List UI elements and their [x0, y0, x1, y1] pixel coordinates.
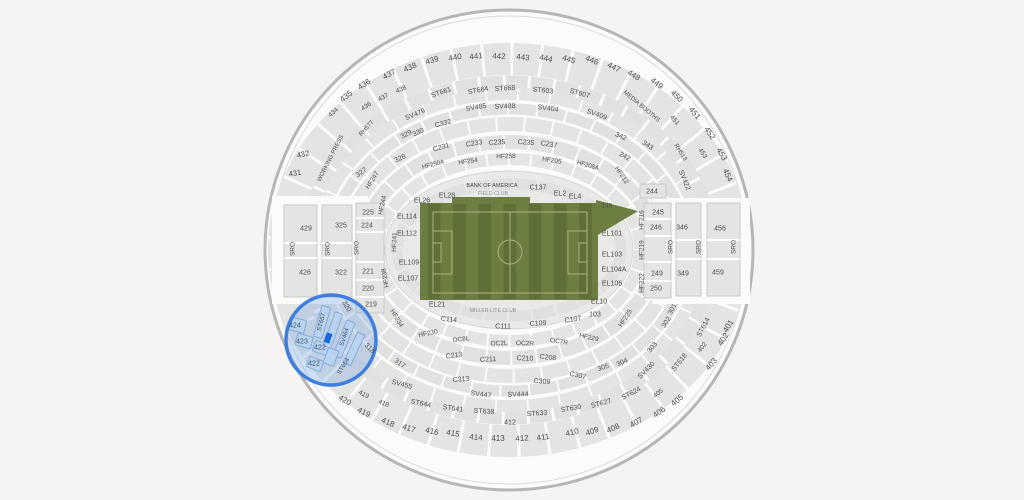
section-label[interactable]: 431	[288, 168, 302, 179]
section-label[interactable]: 413	[491, 434, 505, 443]
field-stripe	[453, 204, 466, 299]
section-label[interactable]: SRO	[324, 242, 331, 256]
section-label[interactable]: 221	[362, 268, 374, 275]
section-label[interactable]: 412	[515, 433, 529, 443]
section-label[interactable]: 424	[289, 322, 301, 329]
section-label[interactable]: EL10	[591, 298, 607, 305]
section-label[interactable]: HF222	[638, 273, 645, 293]
section-label[interactable]: 246	[650, 224, 662, 231]
section-label[interactable]: 422	[308, 360, 320, 367]
section-label[interactable]: EL106	[602, 280, 622, 287]
section-label[interactable]: EL114	[397, 213, 417, 220]
section-label[interactable]: EL21	[429, 301, 445, 308]
field-stripe	[478, 204, 491, 299]
section-label[interactable]: MILLER LITE CLUB	[470, 308, 517, 314]
section-label[interactable]: 145	[602, 202, 613, 209]
section-label[interactable]: 423	[296, 338, 308, 345]
section-label[interactable]: 414	[469, 432, 484, 442]
section-label[interactable]: C235	[489, 139, 506, 147]
section-label[interactable]: EL107	[398, 275, 418, 282]
section-label[interactable]: 325	[335, 222, 347, 229]
section-label[interactable]: EL109	[399, 259, 419, 266]
section-label[interactable]: EL26	[414, 197, 430, 204]
section-label[interactable]: 225	[362, 209, 374, 216]
section-label[interactable]: 245	[652, 209, 664, 216]
section-label[interactable]: 249	[651, 270, 663, 277]
section-label[interactable]: SRO	[353, 241, 360, 255]
section-label[interactable]: ST633	[527, 410, 548, 418]
section-label[interactable]: ST638	[473, 408, 494, 416]
section-label[interactable]: 441	[469, 51, 484, 61]
section-label[interactable]: EL112	[397, 230, 417, 237]
field-north-notch	[452, 197, 530, 204]
section-label[interactable]: 412	[504, 419, 516, 426]
section-label[interactable]: 443	[516, 52, 531, 63]
section-label[interactable]: C210	[516, 355, 533, 363]
section-label[interactable]: 244	[646, 188, 658, 195]
section-label[interactable]: 426	[299, 269, 311, 276]
field-stripe	[579, 204, 592, 299]
section-label[interactable]: HF216	[638, 210, 645, 230]
field-stripe	[554, 204, 567, 299]
section-label[interactable]: ST668	[495, 85, 516, 93]
section-label[interactable]: 346	[676, 224, 688, 231]
section-label[interactable]: 456	[714, 225, 726, 232]
section-label[interactable]: FIELD CLUB	[478, 191, 509, 197]
section-label[interactable]: C235	[517, 139, 534, 147]
section-label[interactable]: 322	[335, 269, 347, 276]
section-label[interactable]: SRO	[730, 240, 737, 254]
section-label[interactable]: EL101	[602, 230, 622, 237]
section-label[interactable]: SV444	[507, 391, 528, 399]
section-label[interactable]: 459	[712, 269, 724, 276]
section-label[interactable]: 250	[650, 285, 662, 292]
section-label[interactable]: BANK OF AMERICA	[466, 183, 518, 189]
field-stripe	[428, 204, 441, 299]
section-label[interactable]: SRO	[289, 242, 296, 256]
section-label[interactable]: C309	[533, 378, 550, 386]
section-label[interactable]: C111	[495, 323, 511, 330]
field-stripe	[529, 204, 542, 299]
section-label[interactable]: HF219	[638, 240, 645, 260]
section-label[interactable]: EL103	[602, 251, 622, 258]
section-label[interactable]: 220	[362, 285, 374, 292]
seat-map-canvas: 4354364374384394404414424434444454464474…	[0, 0, 1024, 500]
section-label[interactable]: 224	[361, 222, 373, 229]
section-label[interactable]: 411	[536, 432, 550, 443]
stadium-seat-map[interactable]: 4354364374384394404414424434444454464474…	[0, 0, 1024, 500]
section-label[interactable]: EL4	[569, 193, 582, 200]
section-label[interactable]: SRO	[667, 240, 674, 254]
section-label[interactable]: HF258	[496, 153, 516, 160]
section-label[interactable]: SRO	[695, 240, 702, 254]
section-label[interactable]: EL2	[554, 190, 567, 197]
section-label[interactable]: OC2L	[490, 340, 508, 348]
section-label[interactable]: EL104A	[602, 266, 627, 273]
section-label[interactable]: 422	[314, 344, 326, 351]
section-label[interactable]: C109	[529, 320, 546, 328]
section-label[interactable]: OC2R	[516, 340, 535, 348]
section-label[interactable]: 349	[677, 270, 689, 277]
section-label[interactable]: 219	[365, 301, 377, 308]
section-label[interactable]: 429	[300, 225, 312, 232]
section-label[interactable]: 442	[492, 52, 506, 61]
section-label[interactable]: SV488	[494, 103, 515, 111]
section-label[interactable]: 103	[589, 311, 601, 318]
section-label[interactable]: C211	[480, 356, 497, 364]
section-label[interactable]: C137	[530, 184, 547, 191]
section-label[interactable]: EL28	[439, 192, 455, 199]
